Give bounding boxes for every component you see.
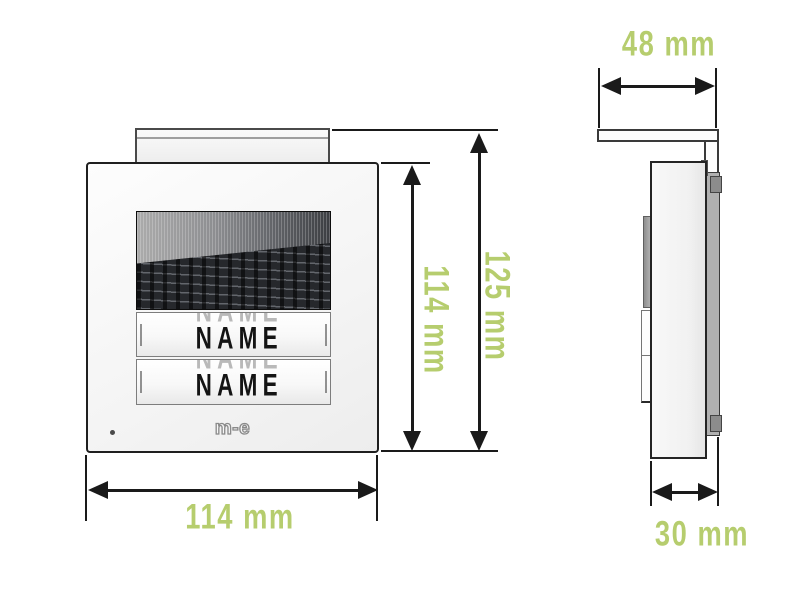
extension-line-depth-top-right [715,68,717,128]
dimension-label-total-height: 125 mm [480,235,515,377]
dimension-arrow-front-width [88,482,378,498]
arrow-shaft [101,489,365,492]
dimension-label-front-width: 114 mm [170,500,310,535]
arrow-shaft [614,85,702,88]
mounting-clip-bottom [710,415,722,432]
arrowhead-right-icon [695,77,715,95]
mounting-clip-top [710,176,722,193]
extension-line-depth-top-left [598,68,600,128]
bracket-groove-line [137,137,328,139]
dimension-label-depth-bottom: 30 mm [642,517,763,552]
nameplate-button-2: NAME NAME [136,359,331,405]
nameplate-label: NAME [137,324,330,354]
side-wall-bracket-horizontal [597,129,719,142]
dimension-diagram: NAME NAME NAME NAME m-e 114 mm 125 mm 11… [0,0,796,602]
side-panel-body [650,161,707,459]
arrowhead-right-icon [358,481,378,499]
dimension-arrow-depth-bottom [652,484,718,500]
nameplate-label: NAME [137,371,330,401]
arrowhead-down-icon [470,431,488,451]
front-mounting-bracket [135,128,330,166]
arrowhead-down-icon [403,431,421,451]
extension-line-bracket-top [332,129,498,131]
extension-line-width-left [85,455,87,521]
front-panel: NAME NAME NAME NAME m-e [86,162,379,453]
dimension-label-panel-height: 114 mm [419,250,454,390]
side-mounting-plate [706,172,720,436]
arrow-shaft [411,178,414,438]
brand-logo: m-e [88,418,377,440]
dimension-label-depth-top: 48 mm [609,27,730,62]
speaker-grille [136,211,331,310]
nameplate-button-1: NAME NAME [136,312,331,357]
arrowhead-right-icon [698,483,718,501]
extension-line-panel-top [381,162,430,164]
dimension-arrow-depth-top [601,78,715,94]
